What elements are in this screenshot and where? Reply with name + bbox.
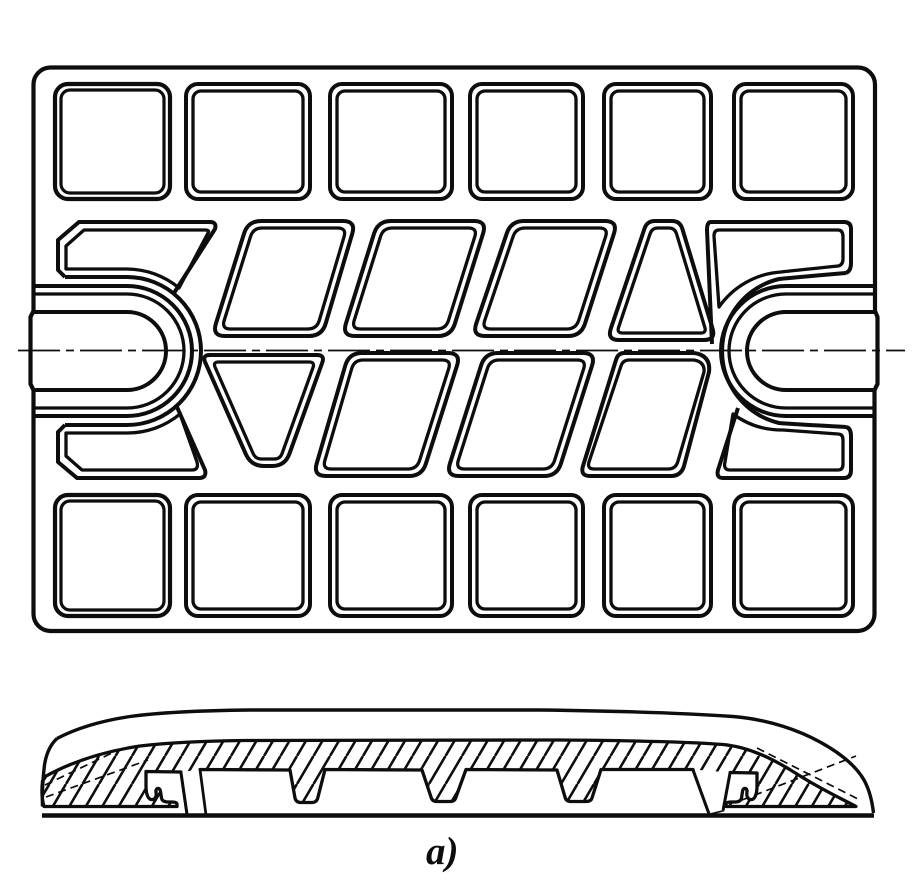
svg-text:a): a) [426, 830, 459, 873]
